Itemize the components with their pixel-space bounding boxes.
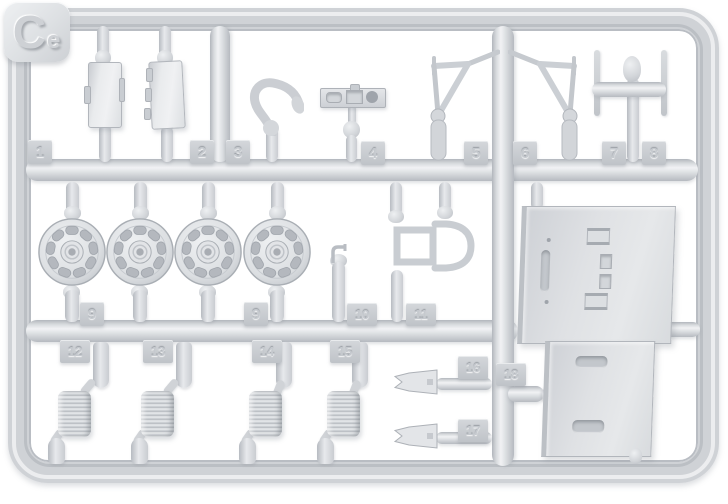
panel-square-detail [600, 254, 613, 269]
road-wheel-part-9d [242, 217, 312, 287]
part-number-tag-7: 7 [602, 141, 626, 165]
box-side-tab [119, 78, 125, 102]
axle-top-cap [623, 56, 641, 82]
curved-bracket-part-3 [242, 74, 304, 136]
sprue-gate [270, 290, 284, 322]
part-number-tag-4: 4 [361, 141, 385, 165]
coil-spring-part-13 [141, 391, 174, 437]
sprue-gate [391, 270, 403, 322]
part-number-tag-9b: 9 [244, 302, 268, 326]
part-number-tag-10: 10 [347, 303, 377, 326]
part-number-tag-17: 17 [458, 419, 488, 442]
part-number-tag-5: 5 [464, 141, 488, 165]
part-number-tag-2: 2 [190, 140, 214, 164]
coil-spring-part-14 [249, 391, 282, 437]
wedge-bracket-part-17 [392, 422, 438, 450]
part-number-tag-12: 12 [60, 340, 90, 363]
sprue-gate [99, 124, 111, 162]
cross-axle-bar [592, 82, 666, 97]
box-side-tab [144, 108, 151, 120]
road-wheel-part-9b [105, 217, 175, 287]
plate-round-detail [366, 91, 378, 103]
sprue-letter-code: Ce [13, 9, 62, 55]
part-number-tag-15: 15 [330, 340, 360, 363]
plate-detail [326, 92, 342, 103]
stowage-box-part-2 [148, 60, 186, 130]
panel-horizontal-slot [572, 420, 604, 433]
sprue-gate [65, 290, 79, 322]
coil-spring-part-12 [58, 391, 91, 437]
frame-loop-part-11 [388, 218, 476, 274]
sprue-gate [317, 438, 334, 464]
sprue-gate-bulb [629, 448, 643, 464]
road-wheel-part-9a [37, 217, 107, 287]
part-number-tag-14: 14 [252, 340, 282, 363]
part-number-tag-16: 16 [458, 356, 488, 379]
sprue-gate [436, 378, 492, 390]
sprue-gate [239, 438, 256, 464]
sprue-gate [161, 126, 173, 162]
sprue-gate [332, 262, 345, 322]
model-kit-sprue-photo: Ce 1 2 3 4 5 6 7 8 [0, 0, 728, 504]
panel-vertical-slot [540, 250, 550, 292]
crank-lever-part-10 [325, 242, 351, 264]
box-side-tab [84, 86, 91, 104]
part-number-tag-8: 8 [642, 141, 666, 165]
part-number-tag-11: 11 [406, 303, 436, 326]
a-frame-part-5 [422, 44, 500, 162]
part-number-tag-18: 18 [496, 363, 526, 386]
part-number-tag-1: 1 [28, 140, 52, 164]
panel-clamp-detail [587, 228, 611, 245]
sprue-gate [133, 290, 147, 322]
plate-detail [346, 90, 363, 104]
part-number-tag-3: 3 [226, 140, 250, 164]
box-side-tab [146, 68, 153, 82]
corner-label-tab: Ce [4, 2, 70, 62]
panel-clamp-detail [584, 293, 608, 310]
road-wheel-part-9c [173, 217, 243, 287]
coil-spring-part-15 [327, 391, 360, 437]
sprue-gate [346, 135, 357, 162]
wedge-bracket-part-16 [392, 368, 438, 396]
sprue-gate [48, 438, 65, 464]
sprue-gate [131, 438, 148, 464]
hull-panel-part [511, 204, 680, 466]
part-number-tag-9a: 9 [80, 302, 104, 326]
panel-horizontal-slot [575, 356, 607, 368]
panel-square-detail [599, 274, 612, 289]
stowage-box-part-1 [88, 62, 122, 128]
part-number-tag-13: 13 [143, 340, 173, 363]
box-side-tab [145, 88, 152, 102]
sprue-gate [201, 290, 215, 322]
part-number-tag-6: 6 [513, 141, 537, 165]
